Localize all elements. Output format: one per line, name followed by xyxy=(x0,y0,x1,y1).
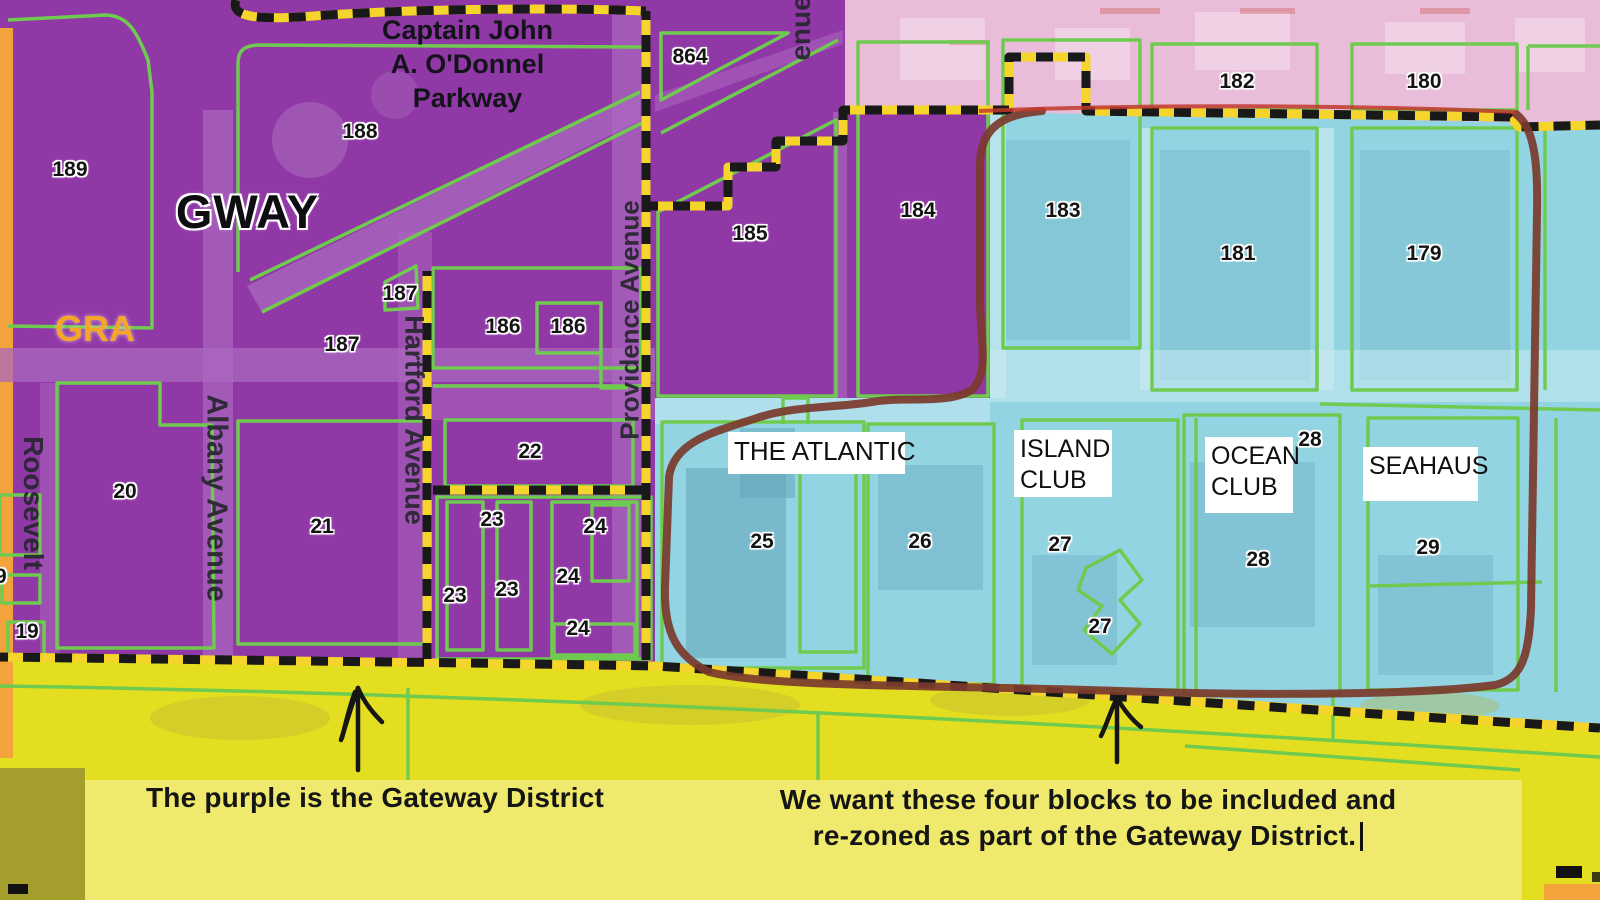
text-cursor xyxy=(1360,822,1363,851)
street-label-parkway: Captain John A. O'Donnel Parkway xyxy=(330,13,605,115)
zoning-map: The purple is the Gateway District We wa… xyxy=(0,0,1600,900)
district-label-gra: GRA xyxy=(50,308,140,350)
building-label-the-atlantic: THE ATLANTIC xyxy=(728,432,905,474)
parkway-line2: A. O'Donnel xyxy=(330,47,605,81)
building-label-ocean-club: OCEAN CLUB xyxy=(1205,437,1293,513)
caption-right-line2[interactable]: re-zoned as part of the Gateway District… xyxy=(756,818,1420,854)
parkway-line3: Parkway xyxy=(330,81,605,115)
building-label-seahaus: SEAHAUS xyxy=(1363,447,1478,501)
district-label-gway: GWAY xyxy=(150,184,345,239)
building-label-text: ISLAND xyxy=(1020,434,1106,465)
caption-right-line1: We want these four blocks to be included… xyxy=(756,782,1420,818)
building-label-text: CLUB xyxy=(1020,465,1106,496)
caption-right-line2-text: re-zoned as part of the Gateway District… xyxy=(813,820,1356,851)
building-label-text: CLUB xyxy=(1211,472,1287,503)
building-label-text: SEAHAUS xyxy=(1369,451,1472,482)
building-label-text: OCEAN xyxy=(1211,441,1287,472)
building-label-text: THE ATLANTIC xyxy=(734,436,899,467)
parkway-line1: Captain John xyxy=(330,13,605,47)
caption-right[interactable]: We want these four blocks to be included… xyxy=(756,782,1420,854)
caption-left: The purple is the Gateway District xyxy=(95,782,655,814)
building-label-island-club: ISLAND CLUB xyxy=(1014,430,1112,497)
